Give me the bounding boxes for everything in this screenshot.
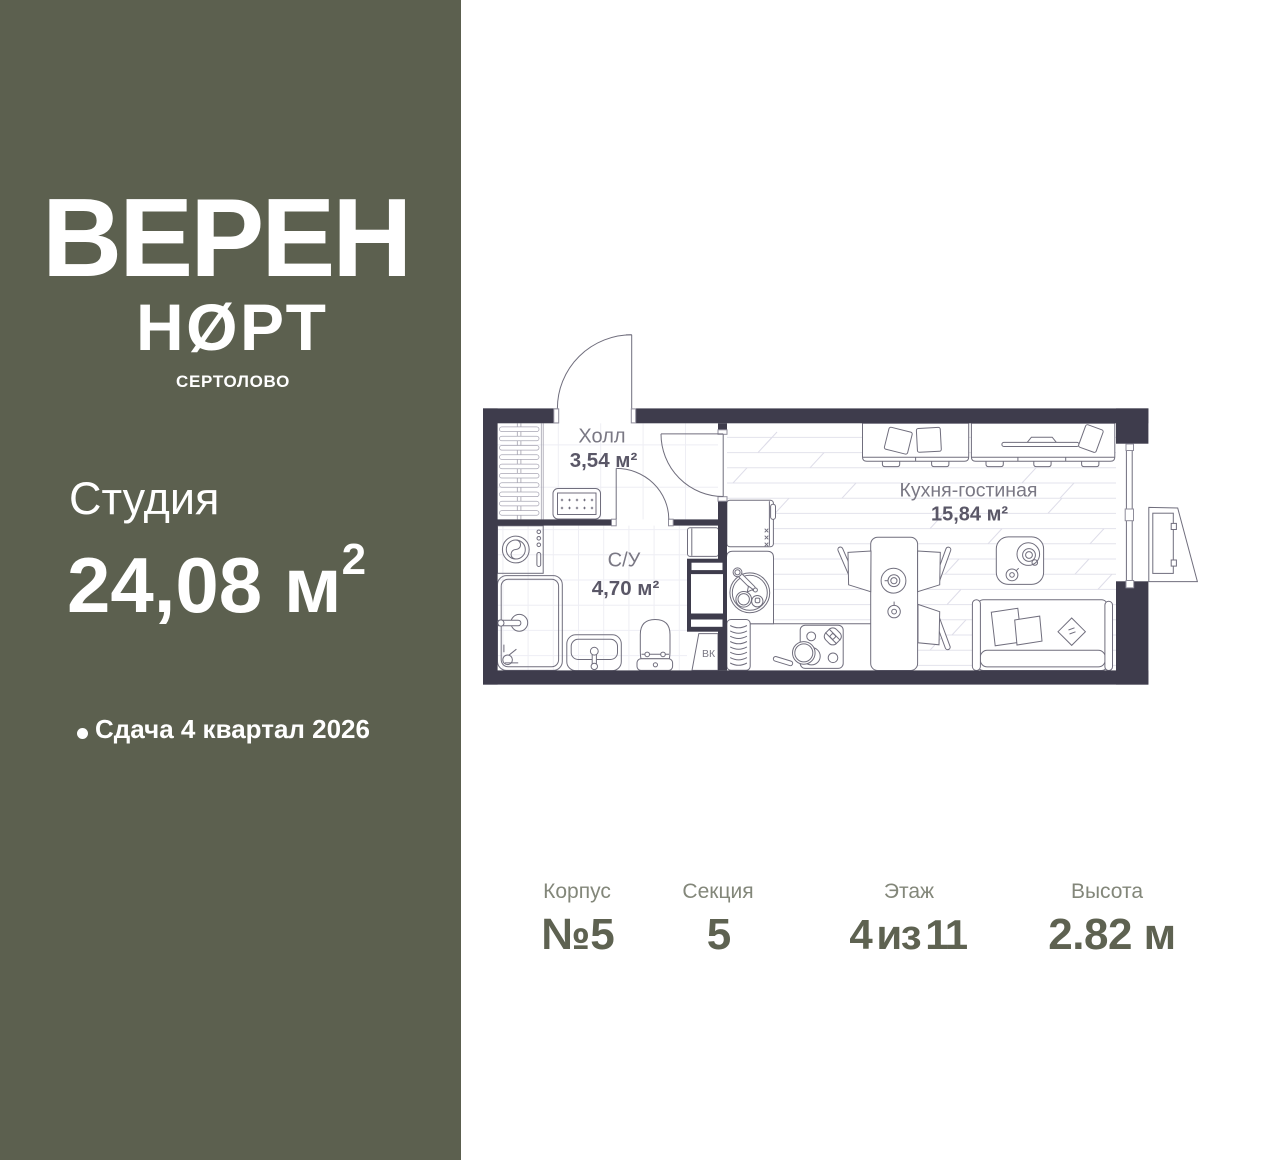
svg-text:Кухня-гостиная: Кухня-гостиная bbox=[900, 480, 1038, 502]
svg-text:3,54 м²: 3,54 м² bbox=[570, 449, 638, 472]
svg-text:ВК: ВК bbox=[702, 648, 716, 660]
svg-text:15,84 м²: 15,84 м² bbox=[931, 504, 1008, 526]
svg-text:4,70 м²: 4,70 м² bbox=[592, 577, 660, 600]
svg-text:Холл: Холл bbox=[578, 426, 625, 448]
svg-text:С/У: С/У bbox=[608, 550, 641, 572]
